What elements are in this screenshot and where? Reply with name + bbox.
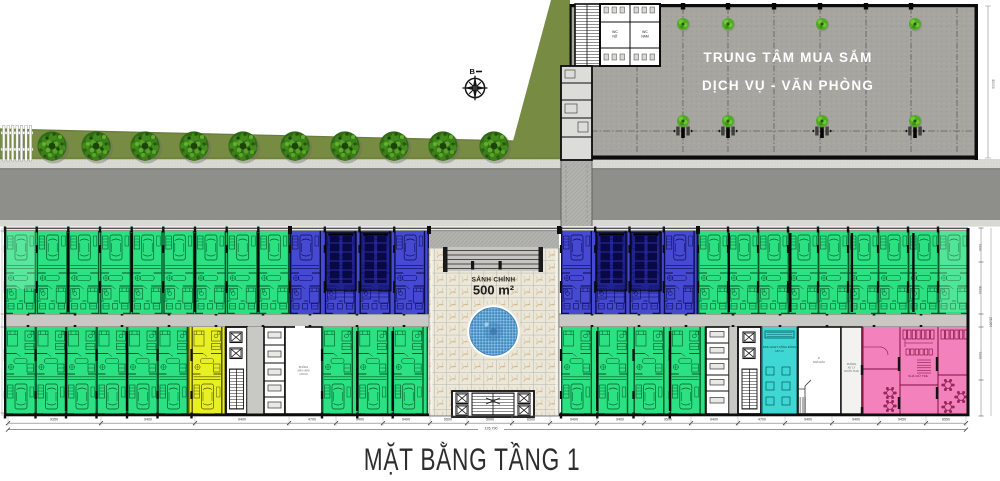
svg-text:9400: 9400 <box>238 418 246 422</box>
svg-text:NỮ: NỮ <box>612 34 617 39</box>
svg-text:5000: 5000 <box>486 418 494 422</box>
svg-text:9400: 9400 <box>804 418 812 422</box>
svg-text:B: B <box>470 67 476 76</box>
svg-text:9400: 9400 <box>356 418 364 422</box>
svg-text:9400: 9400 <box>402 418 410 422</box>
svg-text:9400: 9400 <box>570 418 578 422</box>
svg-text:7000: 7000 <box>978 351 982 359</box>
svg-text:+PCCC: +PCCC <box>299 372 308 376</box>
svg-text:500 m²: 500 m² <box>473 283 515 298</box>
svg-text:WC: WC <box>642 30 648 34</box>
svg-text:NHÀ GIỮ TRẺ: NHÀ GIỮ TRẺ <box>908 373 928 378</box>
svg-text:9400: 9400 <box>144 418 152 422</box>
svg-text:DỊCH VỤ - VĂN PHÒNG: DỊCH VỤ - VĂN PHÒNG <box>702 78 874 93</box>
svg-text:4700: 4700 <box>758 418 766 422</box>
svg-text:MẶT BẰNG TẦNG 1: MẶT BẰNG TẦNG 1 <box>364 441 581 477</box>
svg-text:NAM: NAM <box>641 35 649 39</box>
svg-text:6500: 6500 <box>444 418 452 422</box>
svg-text:126,790: 126,790 <box>485 427 498 431</box>
svg-text:9400: 9400 <box>616 418 624 422</box>
svg-text:MÁY+KIM: MÁY+KIM <box>298 369 310 373</box>
svg-text:7000: 7000 <box>978 243 982 251</box>
svg-text:30000: 30000 <box>991 79 995 89</box>
svg-text:9400: 9400 <box>710 418 718 422</box>
svg-text:WC: WC <box>612 30 618 34</box>
svg-text:9500: 9500 <box>664 418 672 422</box>
svg-text:4700: 4700 <box>308 418 316 422</box>
svg-text:9350: 9350 <box>50 418 58 422</box>
svg-text:6550: 6550 <box>942 418 950 422</box>
svg-text:9450: 9450 <box>898 418 906 422</box>
svg-text:26,060: 26,060 <box>989 317 993 327</box>
svg-text:TRUNG TÂM MUA SẮM: TRUNG TÂM MUA SẮM <box>703 50 872 65</box>
svg-text:9400: 9400 <box>852 418 860 422</box>
svg-text:167 m²: 167 m² <box>775 349 784 353</box>
svg-text:6500: 6500 <box>527 418 535 422</box>
svg-text:NHÀ RÁC: NHÀ RÁC <box>813 360 826 364</box>
svg-text:8500: 8500 <box>978 286 982 294</box>
